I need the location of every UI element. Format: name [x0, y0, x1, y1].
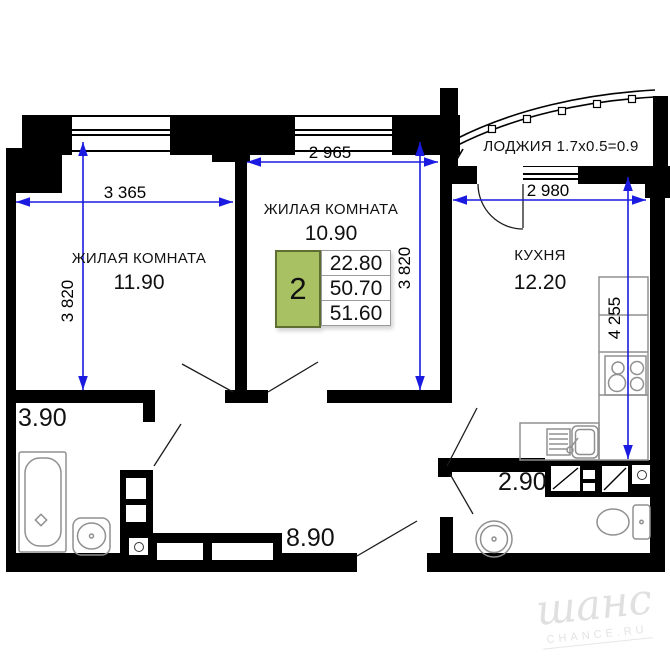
- wc-sink: [476, 521, 512, 557]
- dim-kitchen-depth: 4 255: [605, 288, 625, 348]
- room2-door-leaf: [268, 362, 318, 392]
- info-rooms-count: 2: [275, 250, 321, 328]
- dim-room1-width: 3 365: [60, 183, 190, 203]
- room1-door-leaf: [182, 364, 233, 392]
- hallway-area: 8.90: [286, 524, 356, 553]
- bathroom-door-leaf: [154, 424, 181, 466]
- kitchen-opening-leaf: [447, 408, 477, 466]
- dim-room2-width: 2 965: [285, 143, 375, 163]
- kitchen-name: КУХНЯ: [470, 247, 610, 264]
- floor-plan: ЖИЛАЯ КОМНАТА 11.90 ЖИЛАЯ КОМНАТА 10.90 …: [0, 0, 670, 670]
- room2-name: ЖИЛАЯ КОМНАТА: [250, 201, 412, 218]
- wc-area: 2.90: [498, 468, 568, 497]
- loggia-label: ЛОДЖИЯ 1.7x0.5=0.9: [468, 138, 654, 155]
- toilet-tank: [633, 505, 650, 539]
- info-total-area: 51.60: [321, 300, 391, 326]
- dim-room1-depth: 3 820: [58, 271, 78, 331]
- room1-area: 11.90: [55, 271, 223, 295]
- plan-drawing-overlay: [0, 0, 670, 670]
- info-living-area: 22.80: [321, 250, 391, 276]
- room2-area: 10.90: [250, 222, 412, 246]
- dim-kitchen-width: 2 980: [503, 181, 593, 201]
- info-area-table: 22.80 50.70 51.60: [321, 250, 391, 326]
- entrance-door-leaf: [357, 521, 417, 556]
- bathroom-area: 3.90: [18, 404, 88, 433]
- kitchen-area: 12.20: [470, 271, 610, 295]
- toilet-bowl: [597, 509, 629, 535]
- room1-name: ЖИЛАЯ КОМНАТА: [55, 250, 223, 267]
- wc-door-leaf: [450, 474, 473, 514]
- info-area-without-loggia: 50.70: [321, 275, 391, 301]
- dim-room2-depth: 3 820: [395, 238, 415, 298]
